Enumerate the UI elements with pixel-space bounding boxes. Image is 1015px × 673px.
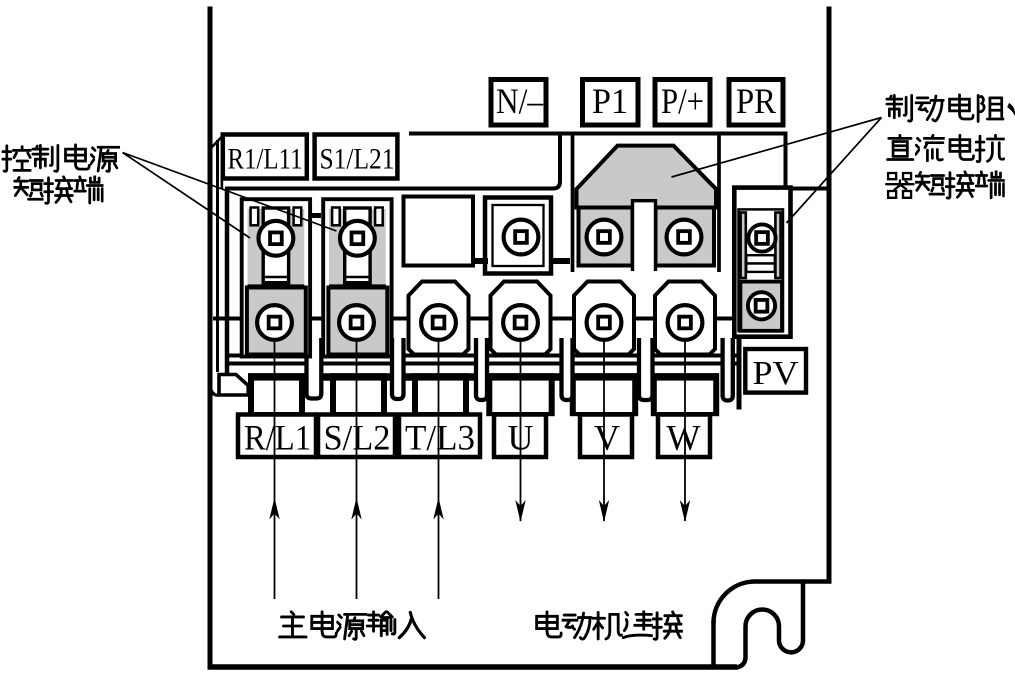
svg-text:S1/L21: S1/L21	[320, 143, 395, 176]
svg-text:PR: PR	[736, 81, 776, 121]
svg-text:N/–: N/–	[496, 81, 544, 121]
svg-text:R1/L11: R1/L11	[228, 143, 303, 176]
svg-text:R/L1: R/L1	[244, 418, 311, 458]
svg-text:V: V	[594, 418, 620, 458]
svg-text:T/L3: T/L3	[405, 418, 475, 458]
svg-text:U: U	[508, 418, 534, 458]
svg-text:S/L2: S/L2	[324, 418, 391, 458]
svg-text:PV: PV	[753, 355, 799, 392]
svg-text:P1: P1	[592, 81, 628, 121]
svg-text:W: W	[667, 418, 701, 458]
svg-text:P/+: P/+	[661, 81, 704, 121]
